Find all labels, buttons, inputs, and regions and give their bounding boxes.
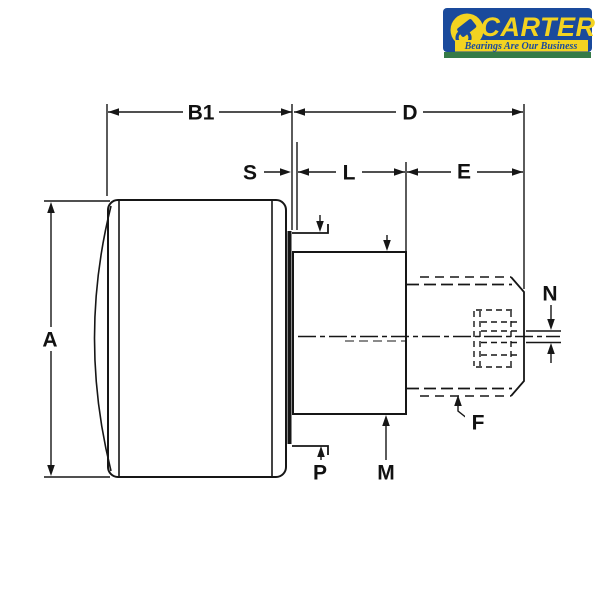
technical-drawing: A B1 D S L E N P M F CARTER Bearings Are… xyxy=(0,0,600,600)
dim-label-n: N xyxy=(542,283,557,306)
dim-label-a: A xyxy=(42,329,57,352)
arrowhead-n-lower xyxy=(547,343,555,354)
logo-brand: CARTER xyxy=(480,12,595,42)
arrowhead-m-bottom xyxy=(382,415,390,426)
arrowhead-b1-right xyxy=(281,108,292,116)
dim-label-b1: B1 xyxy=(188,102,215,125)
arrowhead-m-top xyxy=(383,240,391,251)
arrowhead-b1-left xyxy=(108,108,119,116)
arrowhead-p-bottom xyxy=(317,446,325,457)
roller-outline xyxy=(108,200,286,477)
logo-tagline: Bearings Are Our Business xyxy=(464,41,578,52)
arrowhead-a-bottom xyxy=(47,465,55,476)
carter-logo: CARTER Bearings Are Our Business xyxy=(443,8,596,58)
page: A B1 D S L E N P M F CARTER Bearings Are… xyxy=(0,0,600,600)
arrowhead-s-right xyxy=(298,168,309,176)
arrowhead-e-right xyxy=(512,168,523,176)
hex-socket-hidden-lines xyxy=(474,310,521,367)
cam-follower-part xyxy=(95,200,562,477)
dim-label-f: F xyxy=(472,412,485,435)
dim-label-l: L xyxy=(343,162,356,185)
arrowhead-a-top xyxy=(47,202,55,213)
stud-head xyxy=(293,252,406,414)
arrowhead-s-left xyxy=(280,168,291,176)
arrowhead-n-upper xyxy=(547,319,555,330)
arrowhead-l-right xyxy=(394,168,405,176)
dim-label-d: D xyxy=(402,102,417,125)
arrowhead-p-top xyxy=(316,221,324,232)
arrowhead-e-left xyxy=(407,168,418,176)
dim-label-e: E xyxy=(457,161,471,184)
dim-label-s: S xyxy=(243,162,257,185)
arrowhead-d-right xyxy=(512,108,523,116)
dim-label-p: P xyxy=(313,462,327,485)
arrowhead-d-left xyxy=(294,108,305,116)
logo-green-strip xyxy=(444,52,591,58)
dim-label-m: M xyxy=(377,462,395,485)
